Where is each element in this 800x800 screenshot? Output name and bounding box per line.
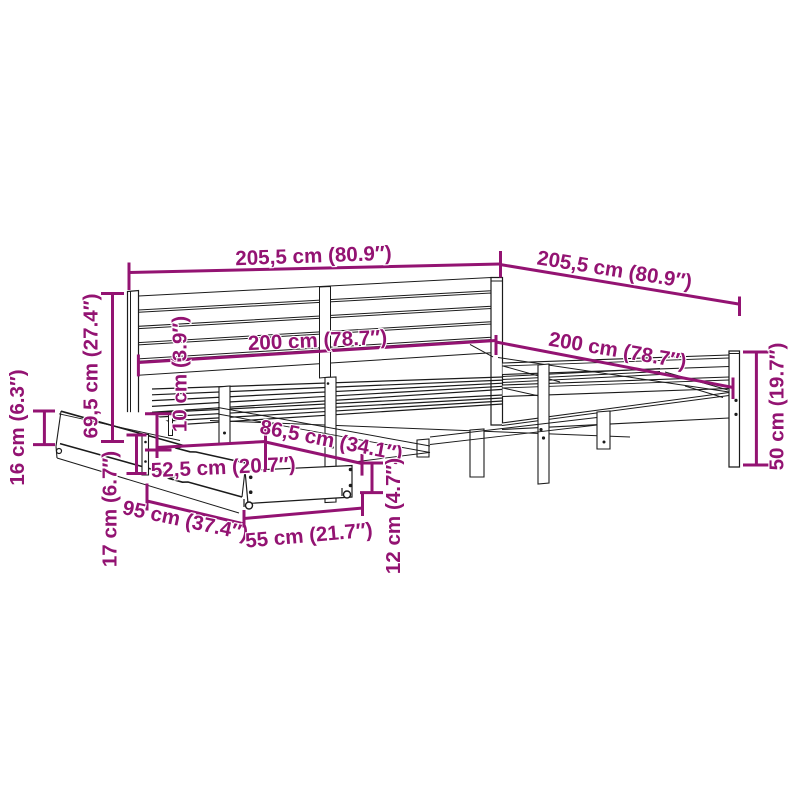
svg-text:69,5 cm (27.4″): 69,5 cm (27.4″) — [80, 294, 103, 439]
svg-text:16 cm (6.3″): 16 cm (6.3″) — [6, 369, 29, 485]
svg-text:10 cm (3.9″): 10 cm (3.9″) — [168, 316, 191, 432]
svg-text:12 cm (4.7″): 12 cm (4.7″) — [382, 458, 405, 574]
svg-text:17 cm (6.7″): 17 cm (6.7″) — [99, 451, 122, 567]
svg-text:50 cm (19.7″): 50 cm (19.7″) — [766, 343, 789, 471]
